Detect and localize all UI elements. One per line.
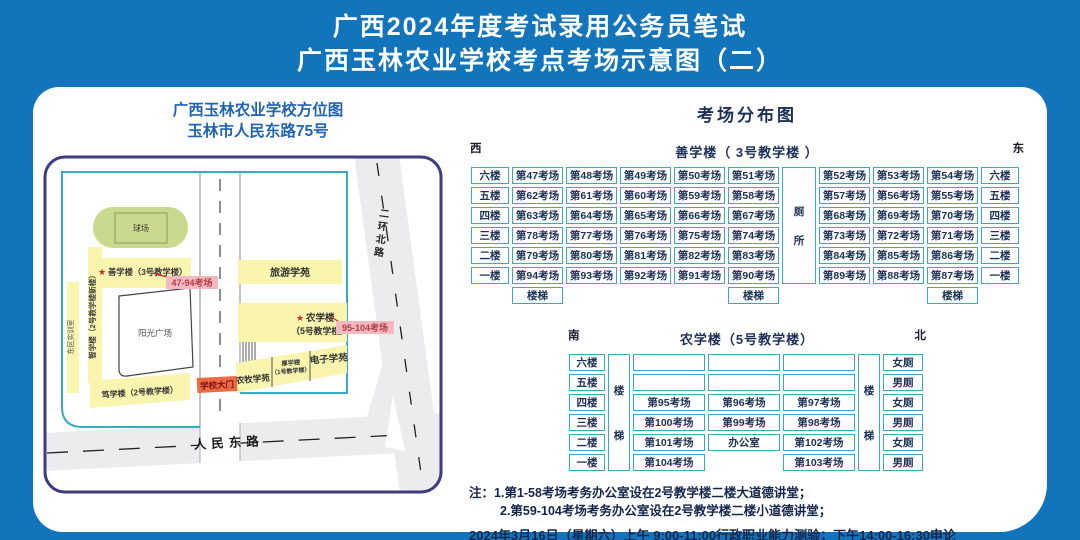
exam-room-cell: 第70考场 [927,207,978,224]
page-title-line2: 广西玉林农业学校考点考场示意图（二） [0,44,1080,78]
distribution-title: 考场分布图 [461,101,1033,126]
exam-room-cell: 第73考场 [819,227,870,244]
direction-north: 北 [915,327,927,343]
exam-room-cell: 第61考场 [566,187,617,204]
toilet-cell: 女厕 [883,394,923,411]
exam-room-cell: 第99考场 [708,414,780,431]
sports-field-label: 球场 [133,223,149,233]
building-2new-label: 智学楼（2号教学楼新楼） [87,271,97,359]
exam-room-cell: 第47考场 [512,167,563,184]
building-3-table: 六楼第47考场第48考场第49考场第50考场第51考场厕所第52考场第53考场第… [468,164,1022,307]
exam-room-cell: 第58考场 [728,187,779,204]
exam-room-cell: 第100考场 [633,414,705,431]
exam-room-cell: 第86考场 [927,247,978,264]
school-gate: 学校大门 [197,376,238,393]
exam-room-cell: 第93考场 [566,267,617,284]
floor-cell: 一楼 [569,454,605,471]
exam-room-cell: 第94考场 [512,267,563,284]
schedule-line: 2024年3月16日（星期六）上午 9:00-11:00行政职业能力测验；下午1… [469,527,1033,540]
stairs-cell: 楼梯 [728,287,779,304]
exam-room-cell: 第52考场 [819,167,870,184]
building-5-label-line1: 农学楼 [305,312,335,324]
floor-cell: 一楼 [471,267,509,284]
exam-room-cell: 第67考场 [728,207,779,224]
exam-room-cell: 第77考场 [566,227,617,244]
floor-cell: 三楼 [471,227,509,244]
exam-room-cell: 第69考场 [873,207,924,224]
empty-cell [471,287,509,304]
tourism-label: 旅游学苑 [270,266,310,279]
plaza-label: 阳光广场 [138,328,172,338]
empty-room-cell [708,354,780,371]
stairs-cell: 楼梯 [608,354,630,471]
exam-room-cell: 第101考场 [633,434,705,451]
exam-room-cell: 第62考场 [512,187,563,204]
floor-cell: 二楼 [471,247,509,264]
exam-room-cell: 第79考场 [512,247,563,264]
exam-room-cell: 第81考场 [620,247,671,264]
toilet-cell: 女厕 [883,354,923,371]
exam-room-cell: 第60考场 [620,187,671,204]
exam-room-cell: 第97考场 [783,394,855,411]
floor-cell: 五楼 [981,187,1019,204]
exam-room-cell: 第53考场 [873,167,924,184]
floor-cell: 二楼 [981,247,1019,264]
exam-room-cell: 第74考场 [728,227,779,244]
exam-room-cell: 第50考场 [674,167,725,184]
campus-map: 球场 阳光广场 ★ 善学楼（3号教学楼） 47-94考场 [43,155,443,494]
toilet-cell: 男厕 [883,374,923,391]
floor-cell: 六楼 [981,167,1019,184]
gate-label: 学校大门 [200,379,234,391]
empty-cell [708,454,780,471]
rooms-47-94-label: 47-94考场 [171,277,212,288]
exam-room-cell: 第72考场 [873,227,924,244]
empty-room-cell [708,374,780,391]
exam-room-cell: 第88考场 [873,267,924,284]
exam-room-cell: 第83考场 [728,247,779,264]
note-line-1: 注：1.第1-58考场考务办公室设在2号教学楼二楼大道德讲堂； [469,484,1033,502]
floor-cell: 四楼 [569,394,605,411]
empty-cell [873,287,924,304]
wc-cell: 厕所 [782,167,816,284]
exam-room-cell: 第103考场 [783,454,855,471]
map-title-line2: 玉林市人民东路75号 [58,121,458,142]
empty-room-cell [633,354,705,371]
empty-room-cell [783,374,855,391]
exam-room-cell: 第55考场 [927,187,978,204]
direction-west: 西 [470,140,482,156]
exam-room-cell: 第104考场 [633,454,705,471]
exam-room-cell: 第57考场 [819,187,870,204]
exam-room-cell: 第92考场 [620,267,671,284]
floor-cell: 六楼 [471,167,509,184]
note-prefix: 注： [469,486,494,500]
exam-room-cell: 第90考场 [728,267,779,284]
exam-room-cell: 第65考场 [620,207,671,224]
exam-room-cell: 第91考场 [674,267,725,284]
exam-room-cell: 第51考场 [728,167,779,184]
building-5-table-title: 农学楼（5号教学楼） [566,329,928,348]
empty-room-cell [783,354,855,371]
empty-cell [566,287,617,304]
stairs-cell: 楼梯 [858,354,880,471]
toilet-cell: 男厕 [883,454,923,471]
page-title-line1: 广西2024年度考试录用公务员笔试 [0,10,1080,44]
empty-cell [620,287,671,304]
exam-room-cell: 第87考场 [927,267,978,284]
exam-room-cell: 第98考场 [783,414,855,431]
floor-cell: 五楼 [569,374,605,391]
floor-cell: 三楼 [569,414,605,431]
exam-room-cell: 第75考场 [674,227,725,244]
map-title-line1: 广西玉林农业学校方位图 [58,100,458,121]
building-5-table-block: 农学楼（5号教学楼） 南 北 六楼楼梯楼梯女厕五楼男厕四楼第95考场第96考场第… [566,329,928,474]
floor-cell: 四楼 [471,207,509,224]
stairs-cell: 楼梯 [927,287,978,304]
content-panel: 广西玉林农业学校方位图 玉林市人民东路75号 [33,87,1047,532]
building-5-table: 六楼楼梯楼梯女厕五楼男厕四楼第95考场第96考场第97考场女厕三楼第100考场第… [566,351,926,474]
distribution-section: 考场分布图 善学楼（ 3号教学楼 ） 西 东 六楼第47考场第48考场第49考场… [461,99,1033,540]
exam-room-cell: 第95考场 [633,394,705,411]
exam-room-cell: 第54考场 [927,167,978,184]
exam-room-cell: 第68考场 [819,207,870,224]
floor-cell: 一楼 [981,267,1019,284]
note-line-2: 2.第59-104考场考务办公室设在2号教学楼二楼小道德讲堂； [469,502,1033,520]
building-3-label: 善学楼（3号教学楼） [108,267,187,277]
building-3-table-block: 善学楼（ 3号教学楼 ） 西 东 六楼第47考场第48考场第49考场第50考场第… [468,142,1026,307]
empty-cell [782,287,816,304]
east-training-label: 东区实训室 [66,320,75,355]
exam-room-cell: 第78考场 [512,227,563,244]
exam-room-cell: 第64考场 [566,207,617,224]
stairs-cell: 楼梯 [512,287,563,304]
page-title: 广西2024年度考试录用公务员笔试 广西玉林农业学校考点考场示意图（二） [0,10,1080,78]
exam-room-cell: 第56考场 [873,187,924,204]
empty-cell [674,287,725,304]
toilet-cell: 女厕 [883,434,923,451]
map-title: 广西玉林农业学校方位图 玉林市人民东路75号 [58,100,458,142]
floor-cell: 五楼 [471,187,509,204]
exam-room-cell: 第63考场 [512,207,563,224]
direction-east: 东 [1013,140,1025,156]
exam-room-cell: 第102考场 [783,434,855,451]
exam-room-cell: 第80考场 [566,247,617,264]
exam-room-cell: 第71考场 [927,227,978,244]
exam-room-cell: 第96考场 [708,394,780,411]
exam-room-cell: 第76考场 [620,227,671,244]
star-icon: ★ [98,267,106,277]
rooms-95-104-label: 95-104考场 [342,322,388,333]
exam-room-cell: 第59考场 [674,187,725,204]
direction-south: 南 [568,327,580,343]
star-icon: ★ [296,313,304,323]
notes-block: 注：1.第1-58考场考务办公室设在2号教学楼二楼大道德讲堂； 2.第59-10… [461,484,1033,540]
exam-room-cell: 第82考场 [674,247,725,264]
exam-room-cell: 第49考场 [620,167,671,184]
exam-room-cell: 第89考场 [819,267,870,284]
exam-room-cell: 第85考场 [873,247,924,264]
exam-room-cell: 办公室 [708,434,780,451]
exam-room-cell: 第48考场 [566,167,617,184]
empty-room-cell [633,374,705,391]
floor-cell: 二楼 [569,434,605,451]
empty-cell [981,287,1019,304]
exam-room-cell: 第84考场 [819,247,870,264]
floor-cell: 四楼 [981,207,1019,224]
building-3-table-title: 善学楼（ 3号教学楼 ） [468,142,1026,161]
floor-cell: 三楼 [981,227,1019,244]
note-text-1: 1.第1-58考场考务办公室设在2号教学楼二楼大道德讲堂； [494,486,811,500]
empty-cell [819,287,870,304]
floor-cell: 六楼 [569,354,605,371]
toilet-cell: 男厕 [883,414,923,431]
exam-room-cell: 第66考场 [674,207,725,224]
